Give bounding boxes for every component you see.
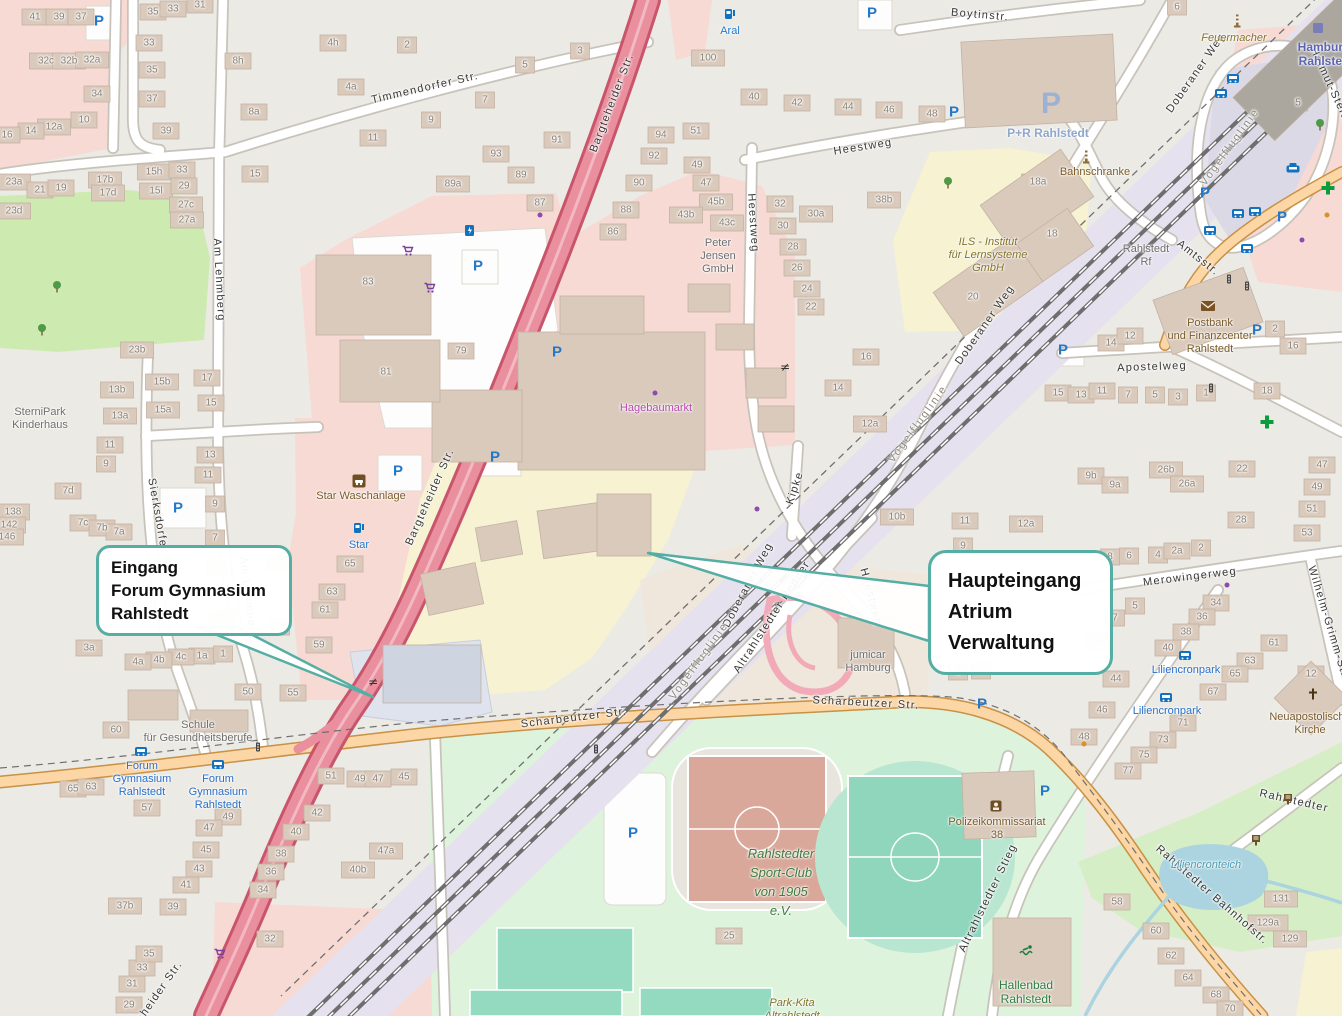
house-number: 13b xyxy=(109,385,126,396)
house-number: 39 xyxy=(160,126,171,137)
house-number: 46 xyxy=(883,105,894,116)
house-number: 15a xyxy=(155,405,172,416)
house-number: 4c xyxy=(176,652,187,663)
house-number: 57 xyxy=(141,803,152,814)
house-number: 16 xyxy=(1287,341,1298,352)
bus-icon xyxy=(1179,650,1191,662)
house-number: 70 xyxy=(1224,1004,1235,1015)
parking-icon: P xyxy=(628,826,638,841)
street-label: Bargteheider Str. xyxy=(403,447,457,547)
house-number: 13 xyxy=(1075,390,1086,401)
place-label: ILS - Institutfür LernsystemeGmbH xyxy=(949,236,1028,275)
street-label: Vogelfluglinie xyxy=(667,620,731,702)
house-number: 32 xyxy=(264,934,275,945)
place-label: SterniParkKinderhaus xyxy=(12,406,68,432)
house-number: 16 xyxy=(860,352,871,363)
tree-icon xyxy=(942,177,954,190)
house-number: 6 xyxy=(1174,2,1180,13)
parking-icon: P xyxy=(473,259,483,274)
house-number: 11 xyxy=(368,133,378,144)
place-label: Liliencronpark xyxy=(1152,664,1220,677)
house-number: 22 xyxy=(805,302,816,313)
house-number: 15 xyxy=(1052,388,1063,399)
street-label: Helmut-Steidl-Platz xyxy=(1307,46,1342,159)
house-number: 11 xyxy=(960,516,970,527)
parking-big-icon: P xyxy=(1041,89,1061,119)
house-number: 44 xyxy=(1110,674,1121,685)
house-number: 40 xyxy=(1162,643,1173,654)
house-number: 42 xyxy=(311,808,322,819)
house-number: 2a xyxy=(1171,546,1182,557)
house-number: 30a xyxy=(808,209,825,220)
parking-icon: P xyxy=(949,105,959,120)
house-number: 12a xyxy=(862,419,879,430)
street-label: Doberaner Weg xyxy=(721,541,776,630)
house-number: 11 xyxy=(1097,386,1107,397)
house-number: 34 xyxy=(1210,598,1221,609)
place-label: Star xyxy=(349,539,369,552)
house-number: 7 xyxy=(482,95,488,106)
street-label: Altrahlstedter Stieg xyxy=(957,842,1020,954)
house-number: 11 xyxy=(203,470,213,481)
place-label: P+R Rahlstedt xyxy=(1007,127,1089,140)
house-number: 19 xyxy=(55,183,66,194)
place-label: Postbankund FinanzcenterRahlstedt xyxy=(1168,317,1253,356)
dot-purple-icon xyxy=(652,390,658,396)
place-label: Hagebaumarkt xyxy=(620,402,692,415)
house-number: 3 xyxy=(577,46,583,57)
house-number: 32a xyxy=(84,55,101,66)
street-label: Apostelweg xyxy=(1117,360,1187,374)
house-number: 12a xyxy=(46,122,63,133)
house-number: 5 xyxy=(1152,390,1158,401)
parking-icon: P xyxy=(490,450,500,465)
place-label: Liliencronteich xyxy=(1171,859,1241,872)
house-number: 24 xyxy=(801,284,812,295)
street-label: Boytinstr. xyxy=(950,6,1009,23)
fuel-icon xyxy=(353,522,365,534)
house-number: 33 xyxy=(143,38,154,49)
house-number: 34 xyxy=(91,89,102,100)
house-number: 15l xyxy=(149,186,162,197)
gate-icon xyxy=(1082,151,1090,164)
map-canvas[interactable]: Timmendorfer Str.Bargteheider Str.Bargte… xyxy=(0,0,1342,1016)
place-label: PeterJensenGmbH xyxy=(700,237,735,276)
bus-icon xyxy=(1204,225,1216,237)
house-number: 60 xyxy=(1150,926,1161,937)
neq-icon: ≠ xyxy=(368,676,378,688)
house-number: 46 xyxy=(1096,705,1107,716)
place-label: RahlstedtRf xyxy=(1123,243,1169,269)
house-number: 26a xyxy=(1179,479,1196,490)
house-number: 9b xyxy=(1085,471,1096,482)
house-number: 89 xyxy=(515,170,526,181)
house-number: 25 xyxy=(723,931,734,942)
house-number: 17 xyxy=(201,373,212,384)
house-number: 47 xyxy=(203,823,214,834)
street-label: Doberaner Weg xyxy=(953,283,1017,367)
house-number: 33 xyxy=(167,4,178,15)
house-number: 17d xyxy=(100,188,117,199)
house-number: 11 xyxy=(105,440,115,451)
dot-orange-icon xyxy=(1324,212,1330,218)
house-number: 9a xyxy=(1109,480,1120,491)
house-number: 26b xyxy=(1158,465,1175,476)
house-number: 58 xyxy=(1111,897,1122,908)
house-number: 63 xyxy=(1244,656,1255,667)
house-number: 93 xyxy=(490,149,501,160)
street-label: Timmendorfer Str. xyxy=(370,70,480,106)
house-number: 39 xyxy=(167,902,178,913)
place-label: Bahnschranke xyxy=(1060,166,1130,179)
bus-icon xyxy=(1215,88,1227,100)
house-number: 131 xyxy=(1273,894,1290,905)
house-number: 4a xyxy=(132,657,143,668)
house-number: 100 xyxy=(700,53,717,64)
house-number: 65 xyxy=(67,784,78,795)
house-number: 92 xyxy=(648,151,659,162)
place-label: jumicarHamburg xyxy=(845,649,890,675)
house-number: 45 xyxy=(398,772,409,783)
house-number: 7d xyxy=(62,486,73,497)
signal-icon xyxy=(593,745,599,756)
house-number: 50 xyxy=(242,687,253,698)
house-number: 67 xyxy=(1207,687,1218,698)
street-label: Wilhelm-Grimm-Stieg xyxy=(1305,564,1342,691)
house-number: 29 xyxy=(178,181,189,192)
street-label: Bargteheider Str. xyxy=(115,959,185,1016)
place-label: Liliencronpark xyxy=(1133,705,1201,718)
house-number: 18 xyxy=(1261,386,1272,397)
tree-icon xyxy=(51,281,63,294)
house-number: 38 xyxy=(1180,627,1191,638)
house-number: 45b xyxy=(708,197,725,208)
house-number: 20 xyxy=(967,292,978,303)
swim-icon xyxy=(1019,944,1035,956)
house-number: 71 xyxy=(1177,718,1188,729)
street-label: Am Lehmberg xyxy=(211,238,227,322)
house-number: 32b xyxy=(61,56,78,67)
house-number: 4 xyxy=(1155,550,1161,561)
street-label: Heestweg xyxy=(745,193,761,253)
house-number: 73 xyxy=(1157,735,1168,746)
house-number: 61 xyxy=(1268,638,1279,649)
street-label: Heestweg xyxy=(858,567,885,627)
place-label: Schulefür Gesundheitsberufe xyxy=(144,719,253,745)
house-number: 64 xyxy=(1182,973,1193,984)
street-label: Kipke xyxy=(784,470,806,506)
street-label: Bargteheider Str. xyxy=(588,52,637,154)
house-number: 37 xyxy=(75,12,86,23)
gate-icon xyxy=(1233,15,1241,28)
house-number: 40 xyxy=(290,827,301,838)
house-number: 12a xyxy=(1018,519,1035,530)
callout1-line2: Forum Gymnasium xyxy=(111,579,283,602)
house-number: 10b xyxy=(889,512,906,523)
house-number: 26 xyxy=(791,263,802,274)
house-number: 47a xyxy=(378,846,395,857)
house-number: 142 xyxy=(1,520,18,531)
station-sq-icon xyxy=(1313,23,1323,33)
house-number: 7 xyxy=(1125,390,1131,401)
signal-icon xyxy=(1208,384,1214,395)
place-label: ForumGymnasiumRahlstedt xyxy=(189,773,248,812)
church-icon xyxy=(1307,688,1319,701)
house-number: 49 xyxy=(354,774,365,785)
callout2-line2: Atrium xyxy=(948,597,1106,628)
house-number: 47 xyxy=(1316,460,1327,471)
house-number: 12 xyxy=(1124,331,1135,342)
house-number: 44 xyxy=(842,102,853,113)
house-number: 79 xyxy=(455,346,466,357)
parking-icon: P xyxy=(173,501,183,516)
house-number: 61 xyxy=(319,605,330,616)
house-number: 33 xyxy=(136,963,147,974)
parking-icon: P xyxy=(393,464,403,479)
house-number: 90 xyxy=(633,178,644,189)
house-number: 81 xyxy=(380,367,391,378)
house-number: 8h xyxy=(232,56,243,67)
house-number: 68 xyxy=(1210,990,1221,1001)
callout-eingang-forum-gymnasium: Eingang Forum Gymnasium Rahlstedt xyxy=(96,545,292,636)
house-number: 18a xyxy=(1030,177,1047,188)
house-number: 3a xyxy=(83,643,94,654)
house-number: 5 xyxy=(1132,601,1138,612)
board-icon xyxy=(1250,834,1262,846)
house-number: 17b xyxy=(97,175,114,186)
callout1-line3: Rahlstedt xyxy=(111,602,283,625)
house-number: 23a xyxy=(6,177,23,188)
house-number: 1 xyxy=(220,649,226,660)
ev-icon xyxy=(465,225,475,237)
house-number: 33 xyxy=(176,165,187,176)
dot-purple-icon xyxy=(1224,582,1230,588)
house-number: 7 xyxy=(1112,613,1118,624)
house-number: 89a xyxy=(445,179,462,190)
house-number: 34 xyxy=(257,885,268,896)
house-number: 1 xyxy=(1203,388,1209,399)
place-label: Park-KitaAltrahlstedt xyxy=(764,997,819,1016)
house-number: 35 xyxy=(146,65,157,76)
house-number: 49 xyxy=(691,160,702,171)
signal-icon xyxy=(1244,282,1250,293)
house-number: 49 xyxy=(1311,482,1322,493)
place-label: Hamburg-Rahlstedt xyxy=(1298,40,1342,68)
house-number: 129a xyxy=(1257,918,1279,929)
bus-icon xyxy=(212,759,224,771)
mail-icon xyxy=(1201,300,1215,312)
house-number: 7c xyxy=(78,518,89,529)
street-label: Amtsstr. xyxy=(1175,238,1222,278)
house-number: 48 xyxy=(1078,732,1089,743)
house-number: 13 xyxy=(204,450,215,461)
house-number: 30 xyxy=(777,221,788,232)
house-number: 48 xyxy=(926,109,937,120)
parking-icon: P xyxy=(1058,343,1068,358)
house-number: 14 xyxy=(832,383,843,394)
house-number: 49 xyxy=(222,812,233,823)
dot-purple-icon xyxy=(537,212,543,218)
parking-icon: P xyxy=(867,6,877,21)
cart-icon xyxy=(424,282,437,295)
place-label: Aral xyxy=(720,25,740,38)
house-number: 53 xyxy=(1301,528,1312,539)
house-number: 3 xyxy=(1175,392,1181,403)
house-number: 7a xyxy=(113,527,124,538)
house-number: 51 xyxy=(325,771,336,782)
police-icon xyxy=(990,800,1002,812)
house-number: 63 xyxy=(326,587,337,598)
parking-icon: P xyxy=(1277,210,1287,225)
fuel-icon xyxy=(724,8,736,20)
house-number: 6 xyxy=(1126,551,1132,562)
street-label: Altrahlstedter Redder xyxy=(731,559,813,676)
house-number: 15 xyxy=(249,169,260,180)
house-number: 35 xyxy=(147,7,158,18)
parking-icon: P xyxy=(1252,323,1262,338)
dot-purple-icon xyxy=(1299,237,1305,243)
bus-icon xyxy=(1227,73,1239,85)
house-number: 36 xyxy=(1196,612,1207,623)
house-number: 4h xyxy=(327,38,338,49)
carwash-icon xyxy=(353,475,366,488)
signal-icon xyxy=(255,743,261,754)
house-number: 129 xyxy=(1282,934,1299,945)
house-number: 138 xyxy=(5,507,22,518)
house-number: 18 xyxy=(1046,229,1057,240)
house-number: 27c xyxy=(178,200,194,211)
house-number: 75 xyxy=(1138,750,1149,761)
house-number: 8a xyxy=(248,107,259,118)
house-number: 41 xyxy=(180,880,191,891)
parking-icon: P xyxy=(1200,186,1210,201)
house-number: 13a xyxy=(112,411,129,422)
parking-icon: P xyxy=(552,345,562,360)
house-number: 5 xyxy=(522,60,528,71)
place-label: HallenbadRahlstedt xyxy=(999,978,1053,1006)
house-number: 28 xyxy=(787,242,798,253)
street-label: Merowingerweg xyxy=(1142,565,1237,588)
house-number: 15h xyxy=(146,167,163,178)
neq-icon: ≠ xyxy=(780,361,790,373)
street-label: Vogelfluglinie xyxy=(886,383,950,465)
house-number: 51 xyxy=(1306,504,1317,515)
house-number: 55 xyxy=(287,688,298,699)
house-number: 86 xyxy=(607,227,618,238)
street-label: Doberaner Weg xyxy=(1164,31,1228,115)
house-number: 47 xyxy=(372,774,383,785)
house-number: 91 xyxy=(551,135,562,146)
house-number: 4a xyxy=(345,82,356,93)
house-number: 38b xyxy=(876,195,893,206)
callout1-line1: Eingang xyxy=(111,556,283,579)
bus-icon xyxy=(1249,206,1261,218)
bus-icon xyxy=(1160,692,1172,704)
house-number: 37b xyxy=(117,901,134,912)
bus-icon xyxy=(1241,243,1253,255)
house-number: 42 xyxy=(791,98,802,109)
house-number: 23b xyxy=(129,345,146,356)
house-number: 146 xyxy=(0,532,15,543)
house-number: 15b xyxy=(154,377,171,388)
house-number: 9 xyxy=(103,459,109,470)
house-number: 14 xyxy=(25,126,36,137)
callout2-line3: Verwaltung xyxy=(948,628,1106,659)
house-number: 7b xyxy=(96,523,107,534)
house-number: 14 xyxy=(1105,338,1116,349)
house-number: 1a xyxy=(196,651,207,662)
house-number: 47 xyxy=(700,178,711,189)
house-number: 12 xyxy=(1305,669,1316,680)
house-number: 9 xyxy=(428,115,434,126)
house-number: 43c xyxy=(719,218,735,229)
house-number: 60 xyxy=(110,725,121,736)
house-number: 62 xyxy=(1165,951,1176,962)
bus-icon xyxy=(135,746,147,758)
house-number: 87 xyxy=(534,198,545,209)
place-label: Star Waschanlage xyxy=(316,490,405,503)
house-number: 94 xyxy=(655,130,666,141)
house-number: 65 xyxy=(344,559,355,570)
house-number: 2 xyxy=(1198,543,1204,554)
place-label: RahlstedterSport-Clubvon 1905e.V. xyxy=(748,844,814,920)
signal-icon xyxy=(1226,275,1232,286)
house-number: 65 xyxy=(1229,669,1240,680)
house-number: 15 xyxy=(205,398,216,409)
house-number: 2 xyxy=(1272,324,1278,335)
street-label: Heestweg xyxy=(833,136,893,157)
house-number: 83 xyxy=(362,277,373,288)
street-label: Scharbeutzer Str. xyxy=(812,694,920,712)
house-number: 21 xyxy=(34,185,45,196)
house-number: 37 xyxy=(146,94,157,105)
house-number: 43 xyxy=(193,864,204,875)
house-number: 59 xyxy=(313,640,324,651)
house-number: 22 xyxy=(1236,464,1247,475)
pharmacy-icon xyxy=(1322,182,1335,195)
pharmacy-icon xyxy=(1261,416,1274,429)
house-number: 38 xyxy=(275,849,286,860)
cart-icon xyxy=(214,948,227,961)
tree-icon xyxy=(36,324,48,337)
street-label: Rahlstedter xyxy=(1258,787,1329,815)
dot-orange-icon xyxy=(1081,741,1087,747)
house-number: 23d xyxy=(6,206,23,217)
tree-icon xyxy=(1314,119,1326,132)
house-number: 43b xyxy=(678,210,695,221)
house-number: 63 xyxy=(85,782,96,793)
place-label: NeuapostolischeKirche xyxy=(1269,711,1342,737)
parking-icon: P xyxy=(977,697,987,712)
house-number: 40 xyxy=(748,92,759,103)
bus-icon xyxy=(1232,208,1244,220)
house-number: 36 xyxy=(265,867,276,878)
house-number: 32c xyxy=(38,56,54,67)
street-label: Scharbeutzer Str. xyxy=(520,706,628,731)
cart-icon xyxy=(402,245,415,258)
house-number: 4b xyxy=(153,655,164,666)
place-label: ForumGymnasiumRahlstedt xyxy=(113,760,172,799)
house-number: 77 xyxy=(1122,766,1133,777)
callout-haupteingang-atrium: Haupteingang Atrium Verwaltung xyxy=(928,550,1113,675)
house-number: 5 xyxy=(1295,98,1301,109)
house-number: 45 xyxy=(200,845,211,856)
house-number: 2 xyxy=(404,40,410,51)
house-number: 16 xyxy=(1,130,12,141)
parking-icon: P xyxy=(94,14,104,29)
callout2-line1: Haupteingang xyxy=(948,566,1106,597)
house-number: 31 xyxy=(126,979,137,990)
